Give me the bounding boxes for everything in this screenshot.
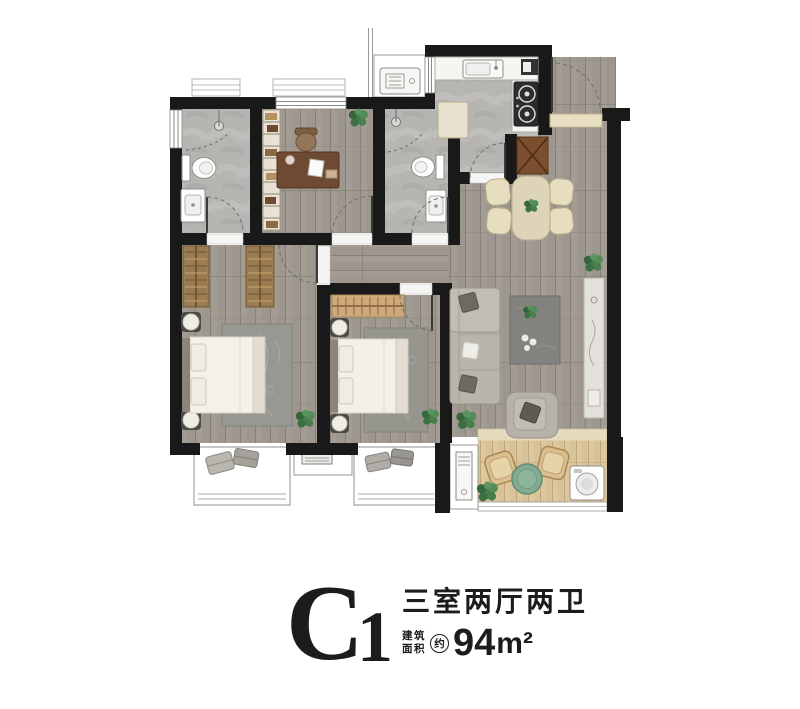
table-plant [523, 305, 537, 318]
plant [456, 410, 476, 429]
approx-badge: 约 [430, 634, 449, 653]
plan-description: 三室两厅两卫 建筑 面积 约 94 m² [402, 580, 588, 661]
bed-throw [396, 339, 408, 413]
wardrobe [183, 246, 209, 307]
pillow [191, 378, 206, 405]
bathroom-sink [426, 190, 446, 222]
pillow [339, 346, 353, 372]
coffee-table-rug [510, 296, 560, 364]
refrigerator [438, 102, 468, 138]
bed-throw [253, 337, 265, 413]
ac-unit [456, 452, 472, 500]
double-bed [330, 339, 408, 413]
plan-code: C 1 [286, 586, 393, 662]
plan-code-letter: C [286, 586, 361, 662]
area-unit: m² [496, 630, 533, 657]
plant [584, 254, 603, 272]
kitchen-window [425, 57, 435, 93]
washing-machine [570, 466, 604, 500]
window-ledge [273, 79, 345, 96]
plant [422, 409, 439, 425]
bathroom1-window [170, 110, 182, 148]
plant [296, 410, 315, 428]
plant [477, 482, 498, 502]
nightstand [330, 318, 349, 337]
nightstand [181, 312, 201, 332]
plant [349, 109, 368, 127]
clothes-rack [332, 295, 404, 317]
master-bay-window [194, 447, 290, 505]
armchair [506, 392, 558, 438]
double-bed [182, 337, 265, 413]
headboard [330, 340, 338, 412]
floor-plan-page: C 1 三室两厅两卫 建筑 面积 约 94 m² [0, 0, 800, 709]
stove [514, 82, 538, 126]
pillow [339, 378, 353, 404]
tv-cabinet [584, 278, 604, 418]
headboard [182, 338, 190, 412]
table-plant [524, 199, 538, 212]
area-label: 建筑 面积 [402, 630, 426, 656]
bedroom2-bay-window [354, 447, 438, 505]
kitchen-sink [463, 60, 503, 78]
study-window [276, 97, 346, 109]
hallway-floor [317, 245, 448, 283]
window-ledge [192, 79, 240, 96]
area-label-bottom: 面积 [402, 643, 426, 656]
area-row: 建筑 面积 约 94 m² [402, 627, 588, 659]
plan-code-number: 1 [357, 614, 393, 662]
pillow [191, 344, 206, 371]
dining-table-set [485, 176, 575, 240]
area-label-top: 建筑 [402, 630, 426, 643]
entry-bench [550, 114, 602, 127]
balcony-table [512, 464, 542, 494]
layout-text: 三室两厅两卫 [402, 580, 588, 620]
plan-title: C 1 三室两厅两卫 建筑 面积 约 94 m² [286, 580, 588, 661]
ac-platform-top [374, 55, 425, 97]
ac-closet-balcony [450, 445, 478, 509]
desk [277, 152, 339, 188]
area-value: 94 [453, 627, 495, 659]
shoe-cabinet [517, 137, 548, 174]
nightstand [330, 414, 349, 433]
sofa [450, 288, 500, 404]
wardrobe [246, 246, 274, 307]
toilet [412, 155, 445, 179]
bathroom-sink [181, 189, 205, 222]
toilet [182, 155, 216, 181]
desk-lamp [286, 156, 295, 165]
desk-chair [295, 128, 317, 151]
